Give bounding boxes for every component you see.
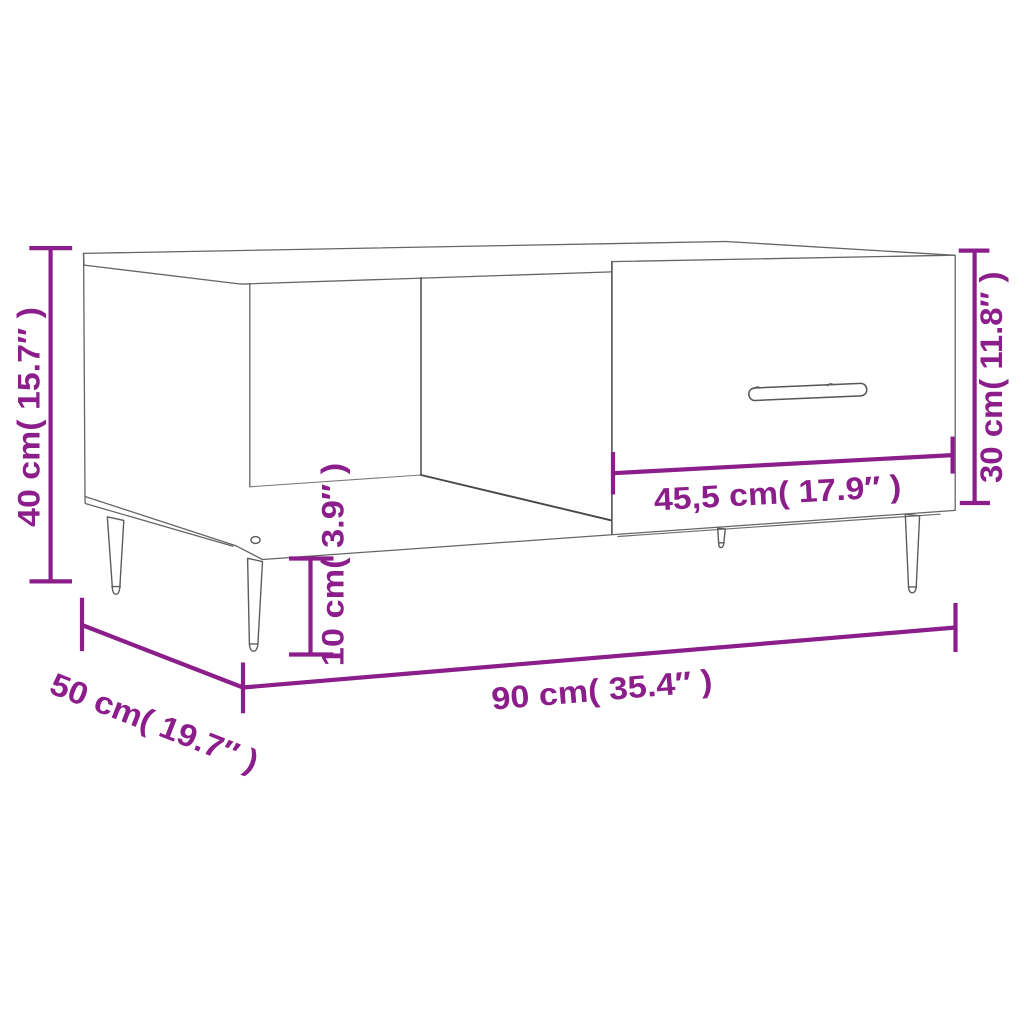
svg-text:30 cm( 11.8″ ): 30 cm( 11.8″ ) bbox=[973, 272, 1008, 483]
svg-text:10 cm( 3.9″ ): 10 cm( 3.9″ ) bbox=[315, 463, 350, 666]
svg-text:45,5 cm( 17.9″ ): 45,5 cm( 17.9″ ) bbox=[653, 468, 902, 517]
svg-text:90 cm( 35.4″ ): 90 cm( 35.4″ ) bbox=[490, 663, 714, 717]
svg-text:40 cm( 15.7″ ): 40 cm( 15.7″ ) bbox=[10, 307, 46, 527]
